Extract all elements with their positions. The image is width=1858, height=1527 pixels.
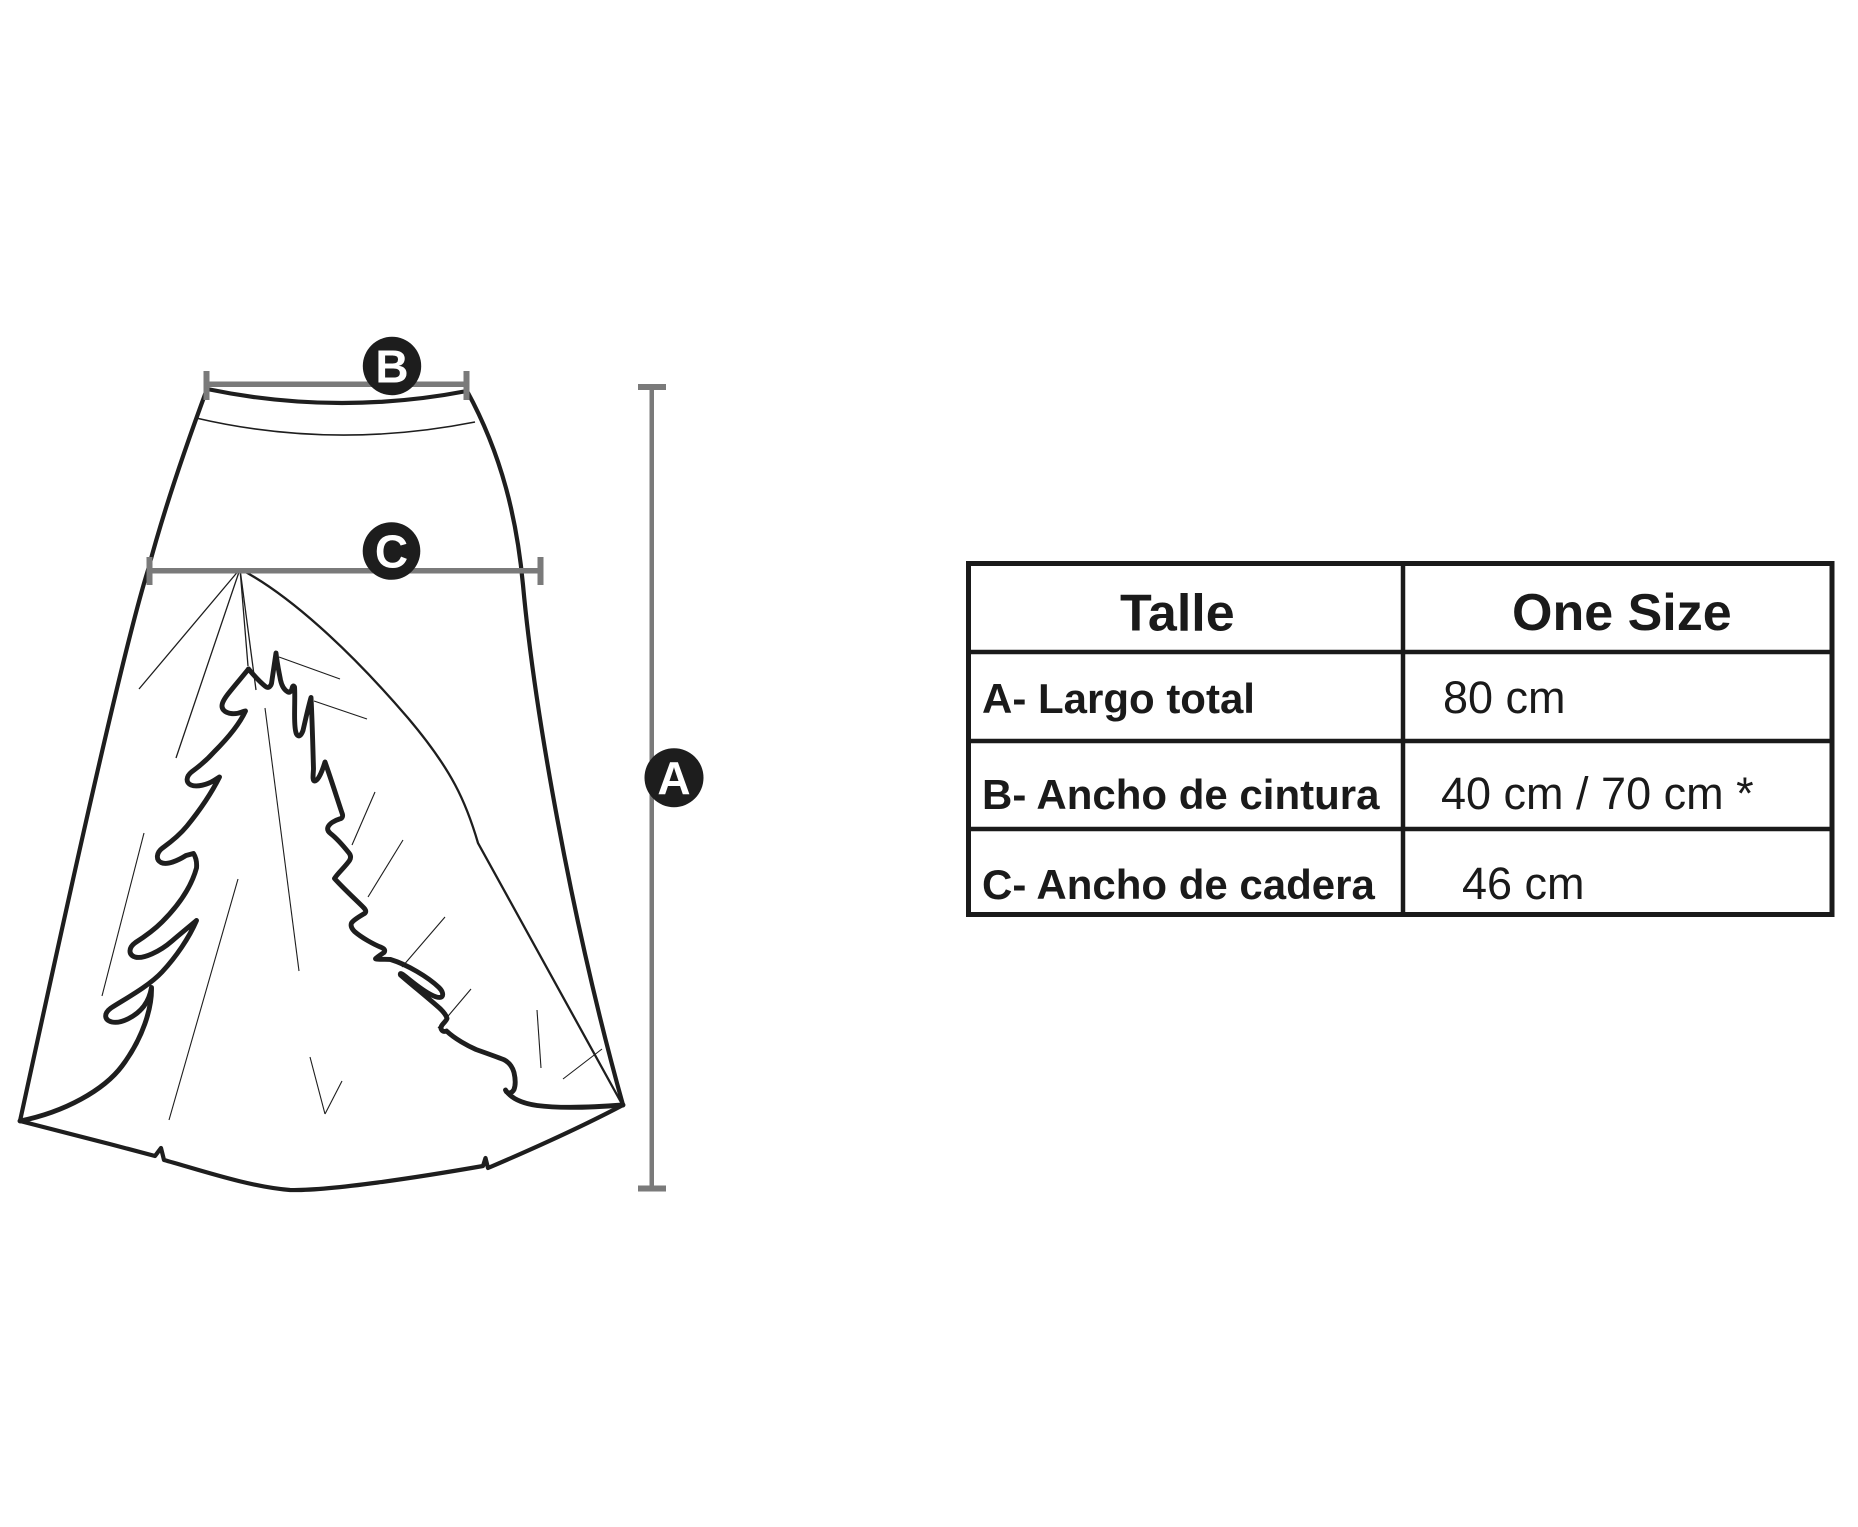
svg-text:C- Ancho de cadera: C- Ancho de cadera (982, 861, 1376, 908)
svg-text:40 cm / 70 cm *: 40 cm / 70 cm * (1441, 768, 1754, 819)
svg-text:One Size: One Size (1512, 584, 1732, 642)
svg-text:80 cm: 80 cm (1443, 672, 1566, 723)
svg-text:A: A (657, 752, 690, 804)
svg-text:A- Largo total: A- Largo total (982, 675, 1255, 722)
svg-text:Talle: Talle (1120, 585, 1235, 643)
svg-text:B- Ancho de cintura: B- Ancho de cintura (982, 771, 1380, 818)
svg-text:C: C (375, 526, 408, 578)
svg-text:B: B (375, 341, 408, 393)
svg-text:46 cm: 46 cm (1462, 858, 1585, 909)
